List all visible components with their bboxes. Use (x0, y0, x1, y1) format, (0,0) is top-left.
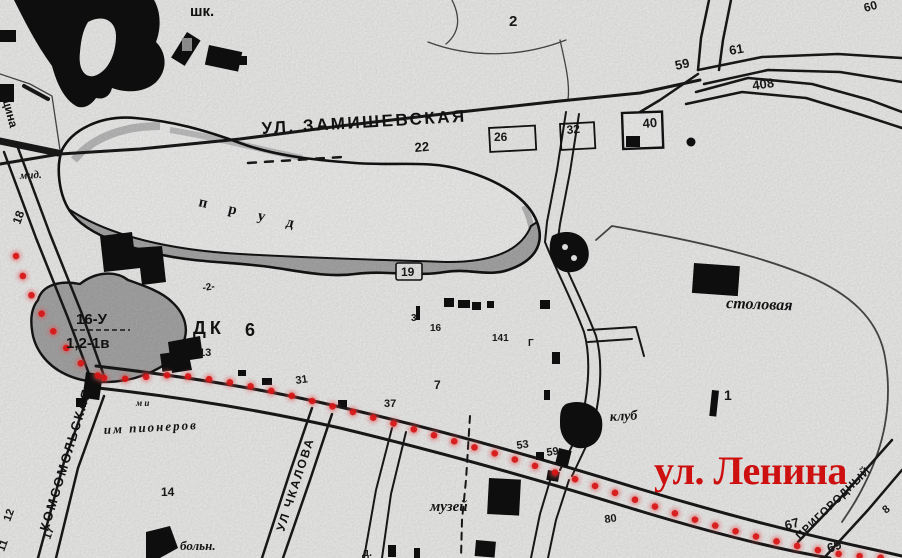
scan-noise-overlay (0, 0, 902, 558)
scanned-map-canvas: УЛ. ЗАМИШЕВСКАЯ п р у д шк. ДК 6 столова… (0, 0, 902, 558)
map-viewport: УЛ. ЗАМИШЕВСКАЯ п р у д шк. ДК 6 столова… (0, 0, 902, 558)
